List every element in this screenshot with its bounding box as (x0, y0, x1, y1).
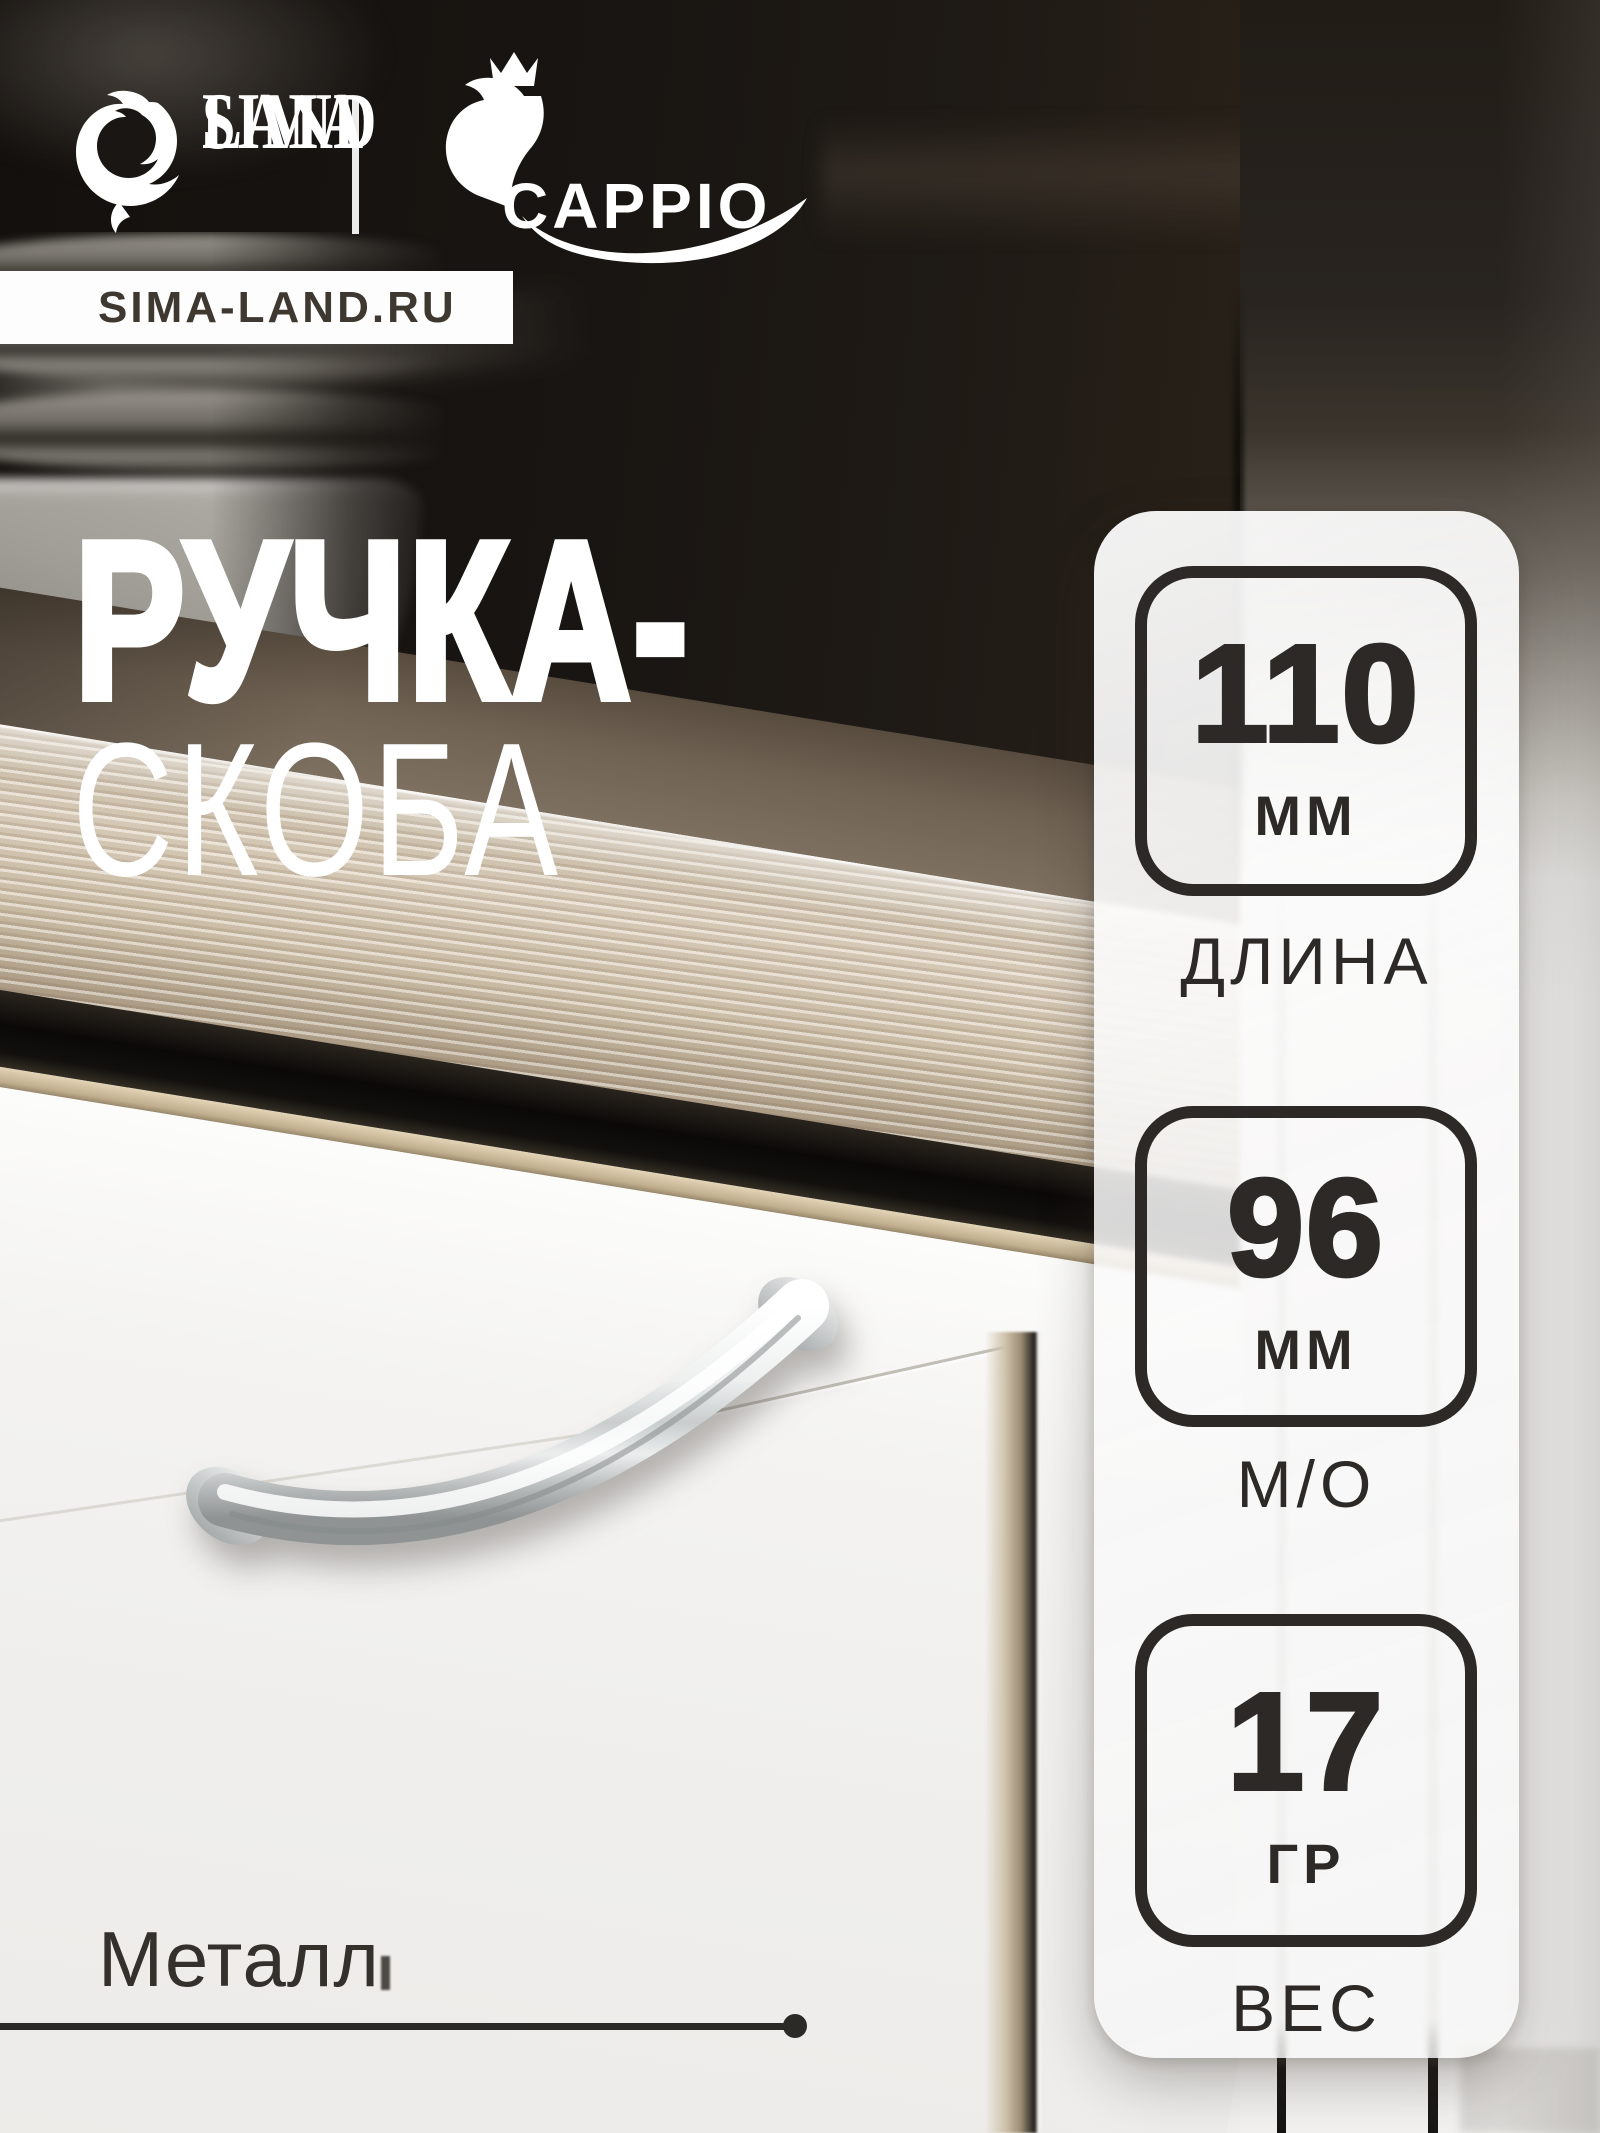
cappio-wordmark: CAPPIO (502, 170, 771, 242)
material-label: Металл (98, 1914, 380, 2005)
spec-value: 96 (1227, 1142, 1385, 1315)
spec-panel: 110 ММ ДЛИНА 96 ММ М/О 17 ГР ВЕС (1094, 511, 1519, 2058)
material-underline-dot (783, 2014, 807, 2038)
logo-divider (352, 96, 359, 234)
spec-label: ВЕС (1094, 1970, 1519, 2046)
spec-label: М/О (1094, 1446, 1519, 1522)
product-title-line1: РУЧКА- (74, 508, 690, 733)
material-underline (0, 2023, 797, 2030)
product-card: SIMA LAND CAPPIO SIMA-LAND.RU РУЧКА- СКО… (0, 0, 1600, 2133)
spec-unit: ММ (1254, 1317, 1357, 1382)
dolphin-icon (72, 82, 192, 238)
spec-label: ДЛИНА (1094, 923, 1519, 999)
cabinet-gap (985, 1332, 1043, 2133)
spec-unit: ГР (1266, 1831, 1345, 1896)
spec-card-length: 110 ММ (1135, 566, 1477, 896)
drawer-gap-notch (381, 1956, 390, 1990)
cabinet-base-shadow (1460, 2048, 1600, 2133)
product-title-line2: СКОБА (72, 715, 561, 905)
cappio-logo: CAPPIO (372, 48, 852, 288)
spec-value: 110 (1192, 608, 1421, 781)
spec-card-hole-spacing: 96 ММ (1135, 1106, 1477, 1427)
spec-unit: ММ (1254, 783, 1357, 848)
metal-handle-photo (150, 1248, 850, 1588)
spec-value: 17 (1227, 1656, 1385, 1829)
spec-card-weight: 17 ГР (1135, 1614, 1477, 1947)
